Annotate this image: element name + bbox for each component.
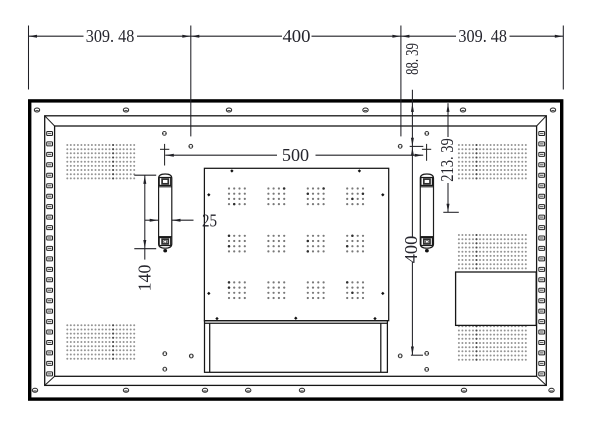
svg-text:400: 400	[282, 26, 310, 47]
svg-text:500: 500	[282, 145, 309, 165]
svg-text:140: 140	[134, 265, 154, 292]
svg-text:88. 39: 88. 39	[403, 43, 423, 75]
svg-text:309. 48: 309. 48	[86, 26, 135, 46]
svg-text:400: 400	[401, 236, 421, 263]
svg-text:309. 48: 309. 48	[458, 26, 507, 46]
svg-text:25: 25	[202, 210, 217, 231]
svg-text:213. 39: 213. 39	[437, 138, 458, 182]
